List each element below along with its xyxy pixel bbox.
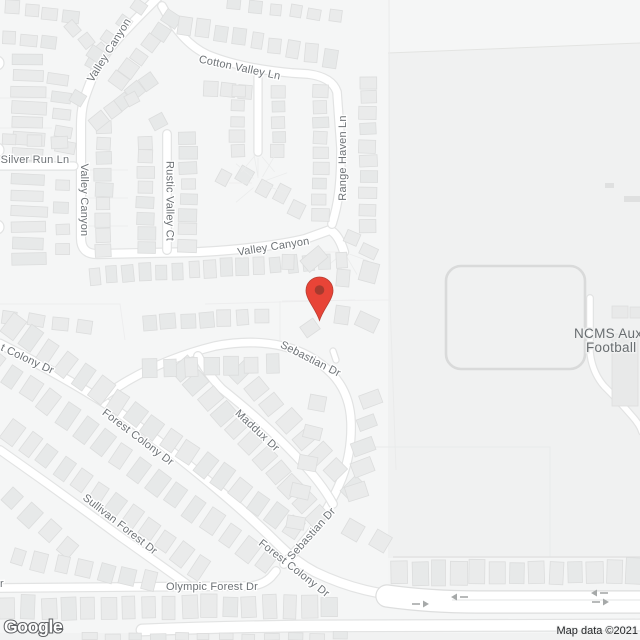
svg-text:r: r — [0, 578, 4, 590]
svg-text:Range Haven Ln: Range Haven Ln — [337, 115, 349, 200]
svg-text:Silver Run Ln: Silver Run Ln — [1, 154, 70, 166]
svg-text:Map data ©2021: Map data ©2021 — [557, 625, 639, 637]
svg-text:Rustic Valley Ct: Rustic Valley Ct — [164, 161, 176, 241]
svg-text:Valley Canyon: Valley Canyon — [78, 164, 90, 237]
svg-text:Google: Google — [4, 617, 63, 637]
svg-text:Olympic Forest Dr: Olympic Forest Dr — [166, 581, 258, 593]
